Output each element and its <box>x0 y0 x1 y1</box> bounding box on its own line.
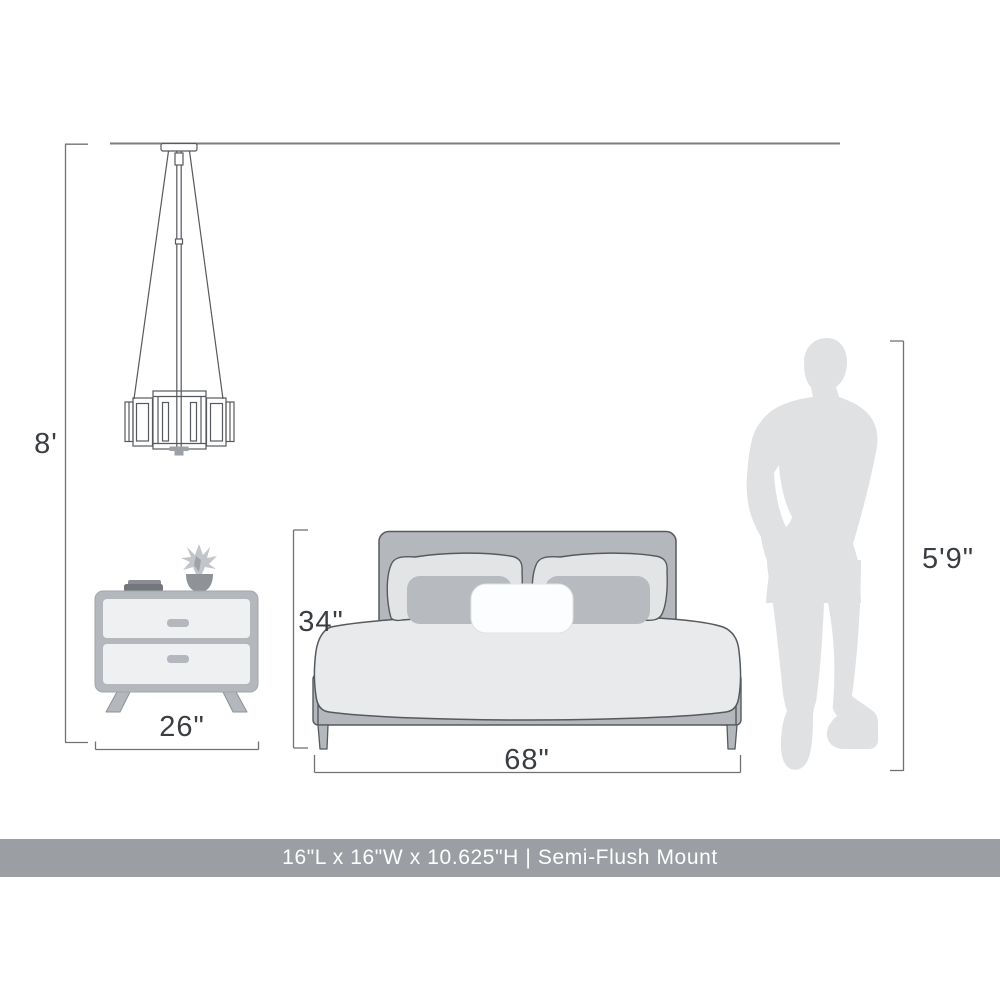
plant-pot <box>186 574 213 592</box>
person-torso-head <box>747 338 878 603</box>
fixture-stem <box>177 150 181 449</box>
bed-leg-left <box>318 725 328 749</box>
fixture-finial <box>175 451 184 456</box>
nightstand-leg-right <box>222 690 247 712</box>
bed-leg-right <box>727 725 737 749</box>
label-person-height: 5'9" <box>922 543 974 575</box>
scale-diagram-canvas: 8' <box>0 0 1000 1000</box>
fixture-wire-right <box>190 151 224 399</box>
nightstand-leg-left <box>106 690 131 712</box>
bed-illustration <box>313 532 741 750</box>
person-silhouette <box>747 338 878 770</box>
label-ceiling-height: 8' <box>34 428 58 460</box>
nightstand-drawer-top <box>103 599 250 638</box>
light-fixture-illustration <box>125 144 234 456</box>
label-nightstand-width: 26" <box>159 711 205 743</box>
nightstand-drawer-bottom <box>103 644 250 684</box>
fixture-stem-coupler <box>175 153 183 165</box>
label-bed-width: 68" <box>504 744 550 776</box>
fixture-stem-joint <box>176 239 183 244</box>
label-bed-height: 34" <box>298 606 344 638</box>
nightstand-handle-top <box>167 619 189 627</box>
white-pillow <box>471 584 573 633</box>
dimension-bed-height <box>294 530 309 748</box>
product-info-banner: 16"L x 16"W x 10.625"H | Semi-Flush Moun… <box>0 839 1000 877</box>
product-info-text: 16"L x 16"W x 10.625"H | Semi-Flush Moun… <box>282 846 718 870</box>
nightstand-illustration <box>95 544 258 712</box>
fixture-bottom-plate <box>170 447 189 452</box>
fixture-wire-left <box>134 151 169 399</box>
fixture-canopy <box>161 144 197 152</box>
dimension-ceiling-height <box>65 144 88 743</box>
dimension-person-height <box>890 341 904 771</box>
nightstand-handle-bottom <box>167 655 189 663</box>
